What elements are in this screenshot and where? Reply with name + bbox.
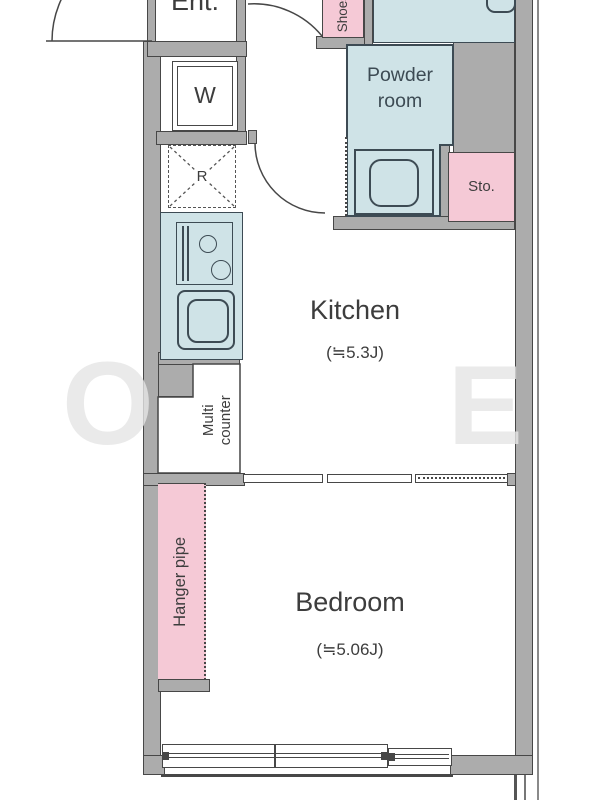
bottom-wall-outer-line [161,774,453,777]
bedroom-window-small [388,748,452,766]
hanger-pipe-area: Hanger pipe [158,483,206,680]
hanger-pipe-label: Hanger pipe [171,537,191,627]
wall-bottom-right [450,755,533,775]
refrigerator-label: R [168,145,236,208]
stove-burner [211,260,231,280]
entrance-door-arc [46,0,152,41]
wall-shoes-right [364,0,373,49]
wall-right [515,0,533,775]
window-divider [274,745,276,767]
stove [176,222,233,285]
kitchen-sink [177,290,235,350]
washbasin [354,149,434,215]
balcony-divider-line [524,775,526,800]
storage-label: Sto. [468,178,495,196]
multi-counter-label-wrap: Multi counter [175,378,259,462]
sliding-door-panel-open [415,474,508,483]
window-glass-line [391,754,449,759]
powder-room-label: Powder room [347,62,453,115]
kitchen-sink-basin [187,299,229,343]
stove-grill-line [187,226,189,281]
accordion-door [341,137,347,216]
bedroom-size-label: (≒5.06J) [250,640,450,660]
window-end-cap [381,752,387,760]
wall-entrance-bottom [147,41,247,57]
outer-wall-line [537,0,539,800]
multi-counter-label: Multi counter [200,378,235,462]
entrance-label: Ent. [150,0,240,17]
kitchen-size-label: (≒5.3J) [255,343,455,363]
washing-machine-space: W [172,61,238,131]
toilet-bowl [486,0,516,13]
window-end-cap [389,753,395,761]
storage-box: Sto. [448,152,515,222]
kitchen-door-arc [255,143,325,213]
sliding-door-panel [243,474,323,483]
watermark-letter-left: O [62,345,154,463]
floor-plan: W Shoes Sto. Hanger pipe [0,0,600,800]
shoes-box: Shoes [322,0,364,38]
bedroom-window [162,744,388,768]
window-end-cap [163,752,169,760]
watermark-letter-right: E [448,350,523,462]
bedroom-label: Bedroom [250,586,450,618]
stove-grill-line [182,226,184,281]
sliding-door-panel [327,474,412,483]
balcony-divider-line [514,775,517,800]
wall-room-divider-stub [507,473,516,486]
stove-burner [199,235,217,253]
hall-door-arc [248,4,322,36]
washing-machine-label: W [173,62,237,130]
sliding-door-dotted-line [418,477,505,479]
shoes-label: Shoes [335,0,351,32]
wall-washer-bottom [156,131,247,145]
kitchen-label: Kitchen [255,294,455,326]
washbasin-bowl [369,159,419,207]
wall-kitchen-door-stub [248,130,257,144]
wall-powder-right [453,42,515,154]
wall-hanger-bottom [158,679,210,692]
